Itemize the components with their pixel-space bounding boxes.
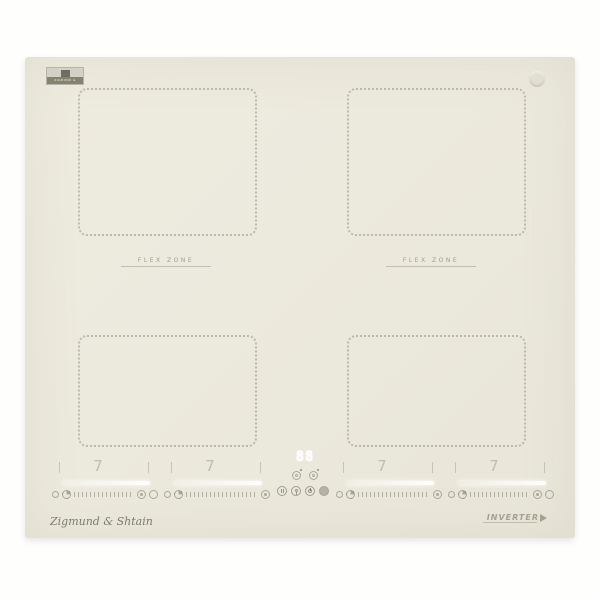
power-level-display-2: 7 <box>164 457 256 475</box>
slider-end-mark <box>59 462 60 473</box>
cooking-zone-bottom-left <box>78 335 257 447</box>
timer-plus-button <box>309 471 318 480</box>
product-photo: ZIGMUND & SHTAIN FLEX ZONE FLEX ZONE 7 7 <box>0 0 600 600</box>
child-lock-icon <box>291 486 301 496</box>
zone-control-cluster-4: 7 <box>448 457 554 503</box>
inverter-swoosh <box>483 522 537 523</box>
slider-end-mark <box>260 462 261 473</box>
zone-select-button <box>164 491 171 498</box>
power-slider-ticks <box>186 492 258 497</box>
slider-strip <box>346 481 434 485</box>
induction-hob-surface: ZIGMUND & SHTAIN FLEX ZONE FLEX ZONE 7 7 <box>25 57 575 538</box>
center-console: 88 <box>276 449 334 501</box>
slider-end-mark <box>455 462 456 473</box>
power-level-display-3: 7 <box>336 457 428 475</box>
brand-signature: Zigmund & Shtain <box>50 515 153 528</box>
brand-emblem-icon <box>61 70 70 77</box>
timer-display: 88 <box>276 449 334 465</box>
pause-button-icon <box>277 486 287 496</box>
power-button-icon <box>305 486 315 496</box>
slider-end-mark <box>544 462 545 473</box>
power-level-display-1: 7 <box>52 457 144 475</box>
main-power-touch-point <box>319 486 329 496</box>
zone-select-button <box>336 491 343 498</box>
timer-minus-button <box>292 471 301 480</box>
embossed-mark-icon <box>529 71 545 87</box>
zone-control-cluster-1: 7 <box>52 457 158 503</box>
slider-end-mark <box>171 462 172 473</box>
flex-zone-label-left: FLEX ZONE <box>121 257 211 267</box>
zone-control-cluster-2: 7 <box>164 457 270 503</box>
slider-strip <box>62 481 150 485</box>
slider-strip <box>458 481 546 485</box>
slider-end-mark <box>343 462 344 473</box>
power-slider-ticks <box>74 492 134 497</box>
zone-select-button <box>52 491 59 498</box>
heat-indicator-icon <box>458 490 467 499</box>
slider-end-mark <box>432 462 433 473</box>
cooking-zone-bottom-right <box>347 335 526 447</box>
boost-button <box>137 490 146 499</box>
cooking-zone-top-left <box>78 88 257 236</box>
timer-select-button <box>545 490 554 499</box>
boost-button <box>261 490 270 499</box>
heat-indicator-icon <box>62 490 71 499</box>
heat-indicator-icon <box>174 490 183 499</box>
boost-button <box>533 490 542 499</box>
brand-logo-badge: ZIGMUND & SHTAIN <box>46 67 84 85</box>
inverter-arrow-icon <box>540 514 547 522</box>
inverter-badge: INVERTER <box>487 513 547 522</box>
cooking-zone-top-right <box>347 88 526 236</box>
flex-zone-label-right: FLEX ZONE <box>386 257 476 267</box>
boost-button <box>433 490 442 499</box>
power-slider-ticks <box>358 492 430 497</box>
power-level-display-4: 7 <box>448 457 540 475</box>
zone-control-cluster-3: 7 <box>336 457 442 503</box>
slider-end-mark <box>148 462 149 473</box>
slider-strip <box>174 481 262 485</box>
brand-logo-text: ZIGMUND & SHTAIN <box>47 77 83 84</box>
inverter-badge-label: INVERTER <box>487 513 539 522</box>
zone-select-button <box>448 491 455 498</box>
heat-indicator-icon <box>346 490 355 499</box>
power-slider-ticks <box>470 492 530 497</box>
timer-select-button <box>149 490 158 499</box>
